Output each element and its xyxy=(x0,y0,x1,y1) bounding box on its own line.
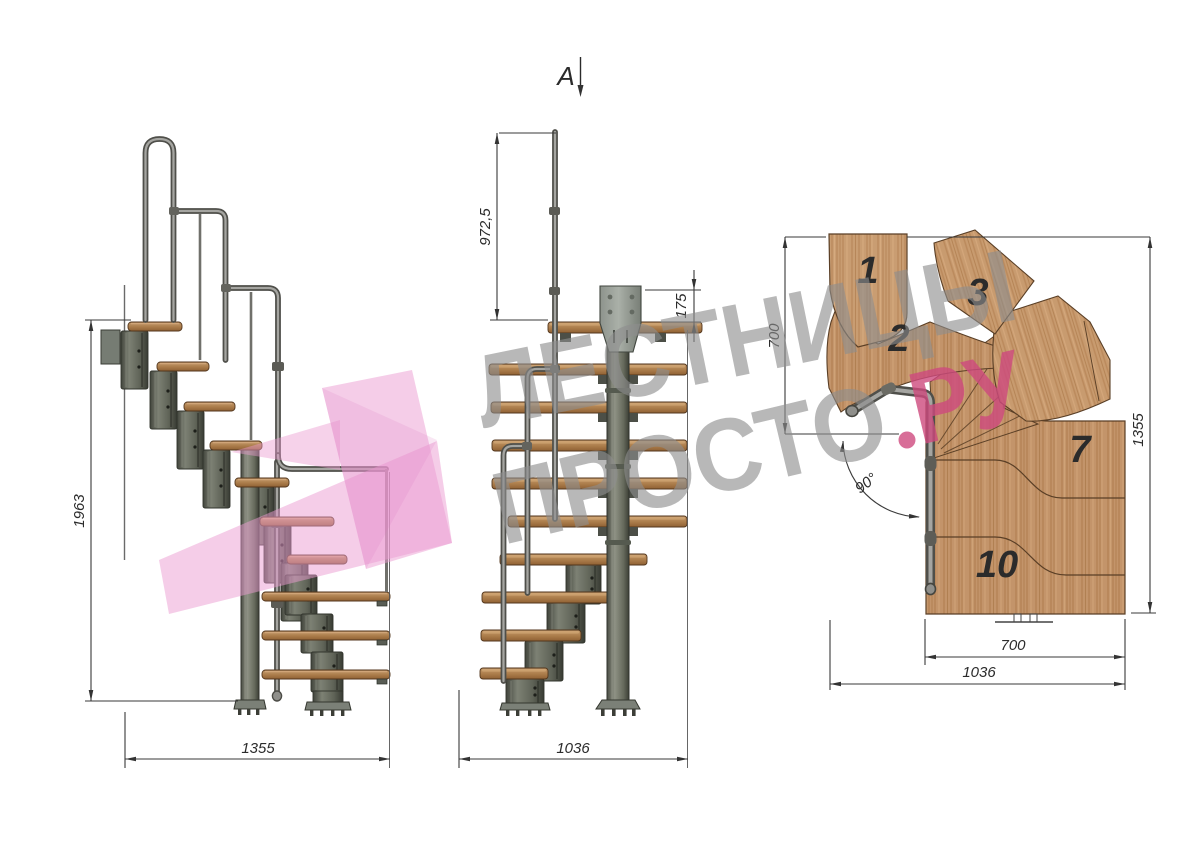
svg-text:972,5: 972,5 xyxy=(477,208,494,246)
svg-text:700: 700 xyxy=(1000,637,1026,654)
svg-text:1036: 1036 xyxy=(962,664,996,681)
svg-text:10: 10 xyxy=(976,544,1018,586)
svg-text:A: A xyxy=(555,61,574,91)
svg-text:1355: 1355 xyxy=(1130,413,1147,447)
svg-text:1036: 1036 xyxy=(556,740,590,757)
svg-text:7: 7 xyxy=(1069,429,1092,471)
svg-text:1963: 1963 xyxy=(71,494,88,528)
svg-text:1355: 1355 xyxy=(241,740,275,757)
